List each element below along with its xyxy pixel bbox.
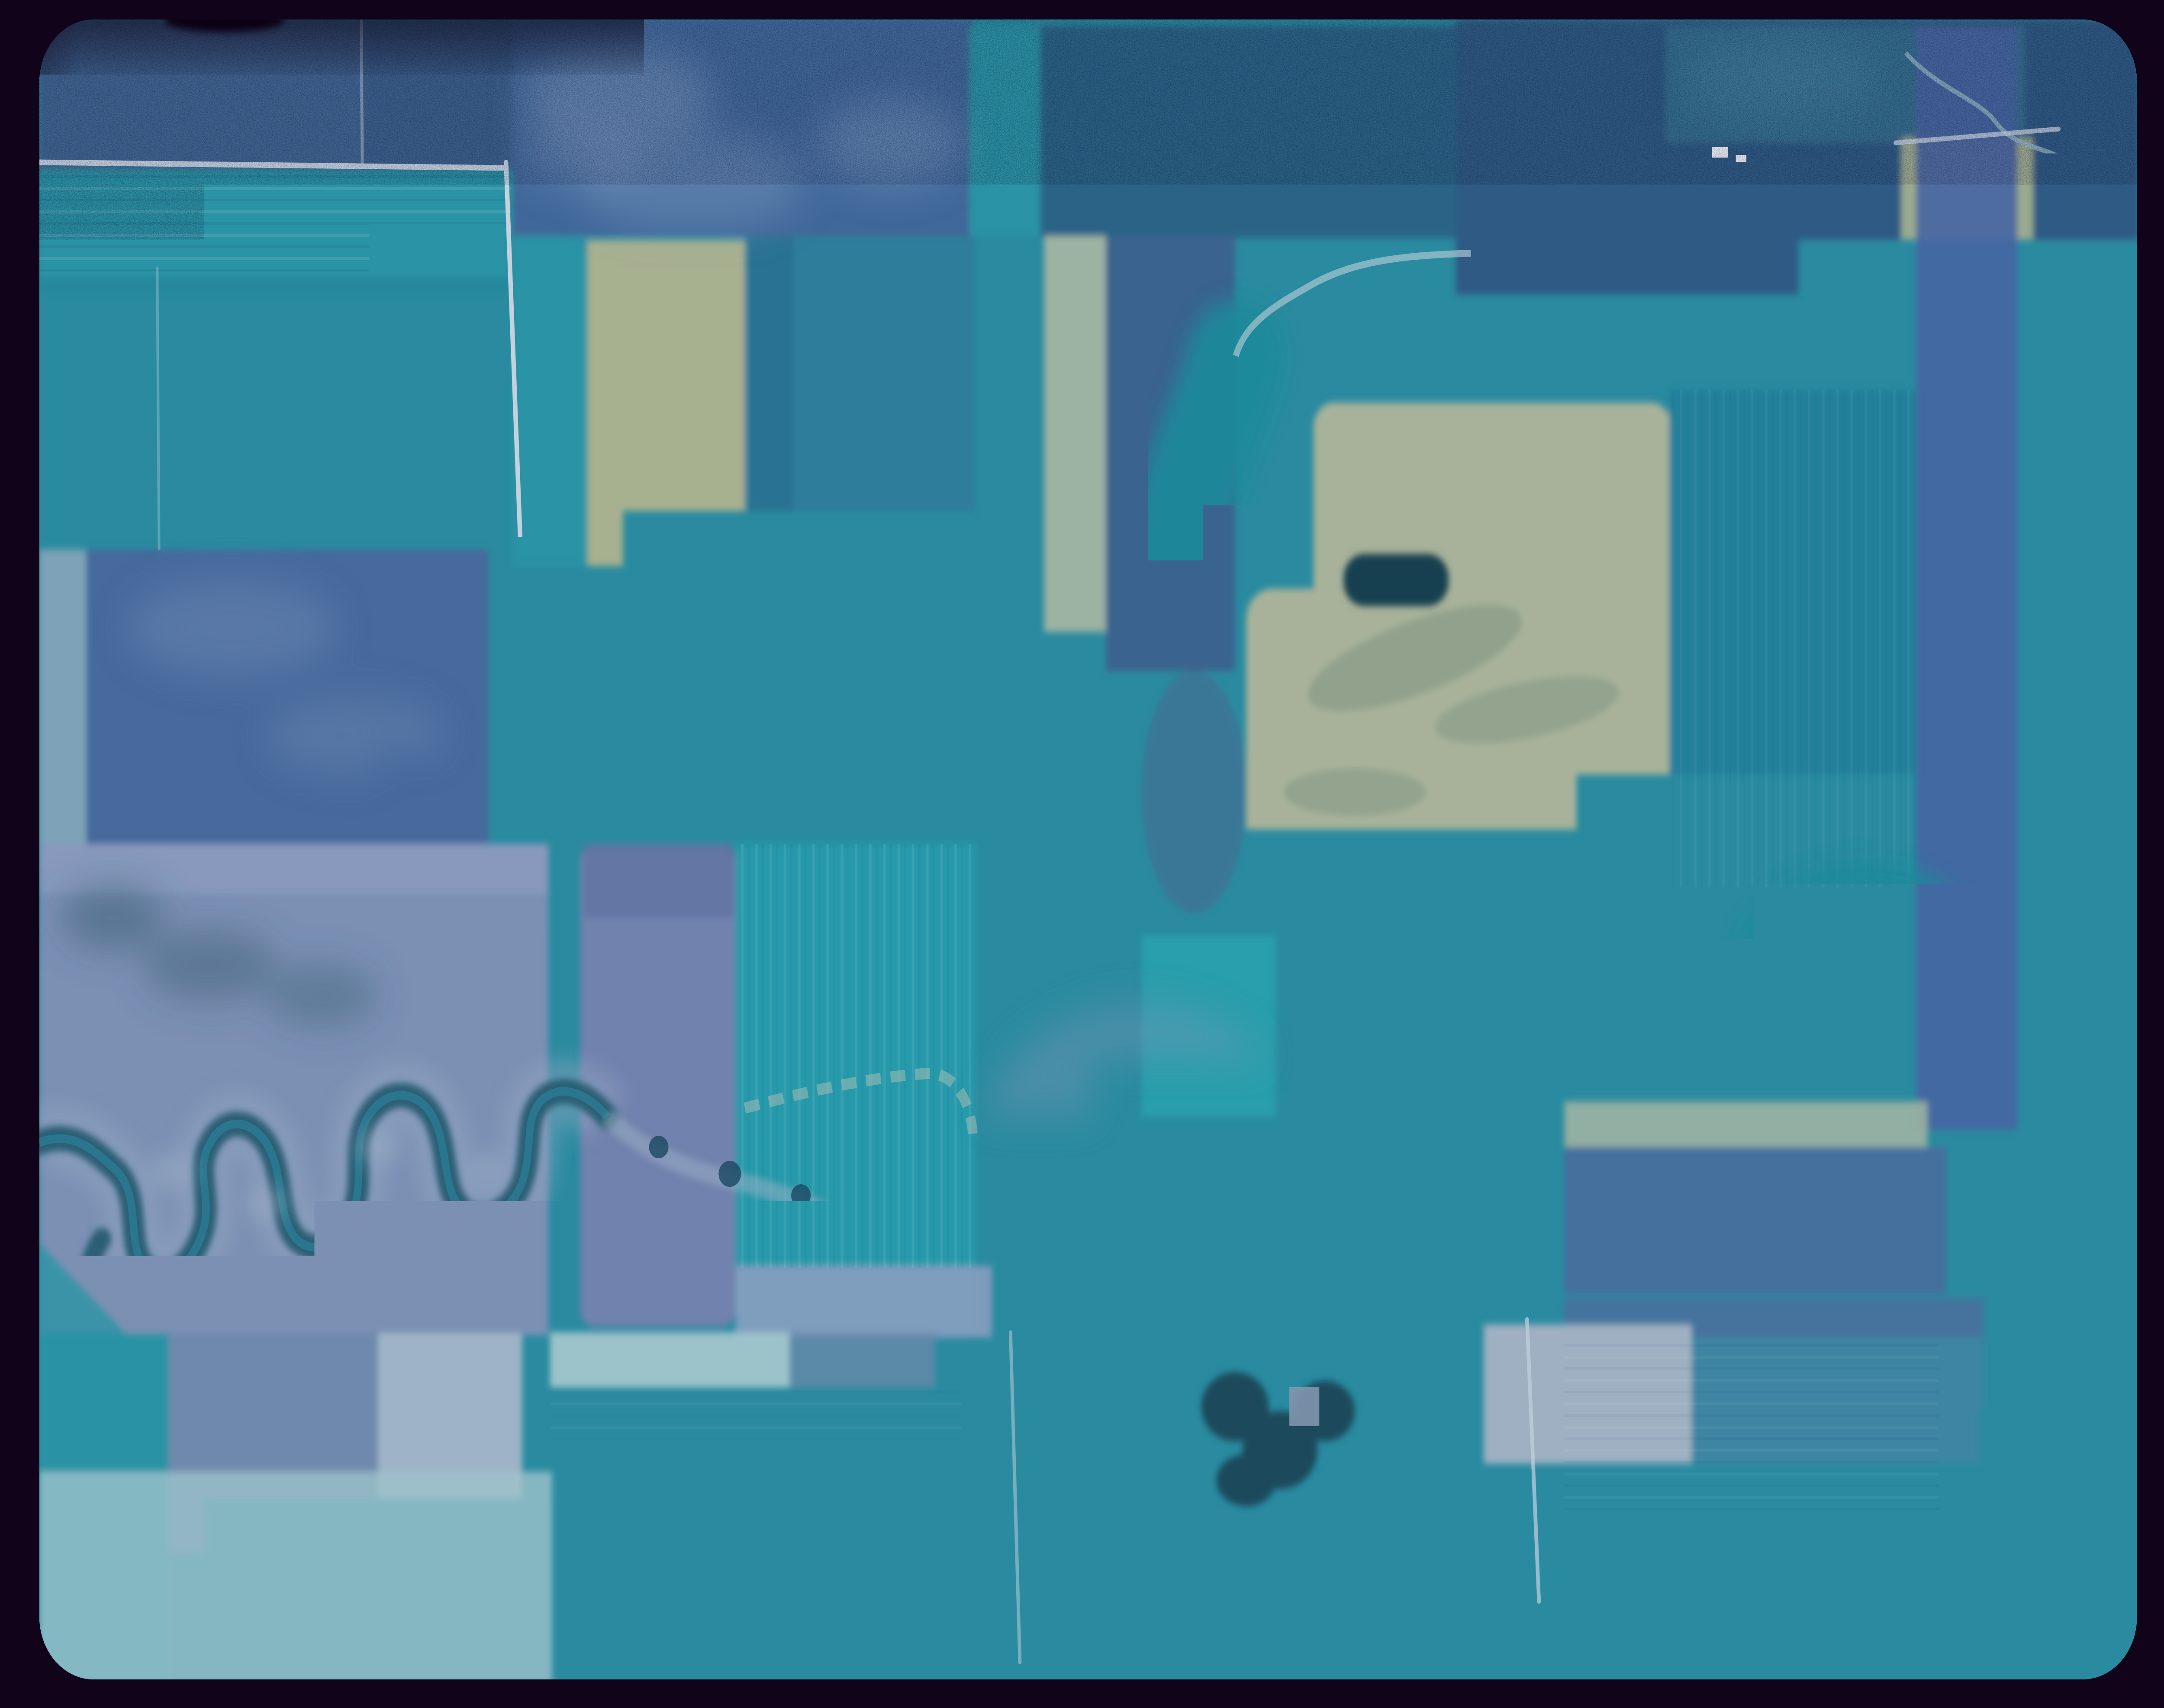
photo-area [39, 9, 2139, 1708]
aerial-photo-slide [0, 0, 2164, 1708]
film-slide [0, 0, 2164, 1708]
film-grain [39, 19, 2137, 1679]
